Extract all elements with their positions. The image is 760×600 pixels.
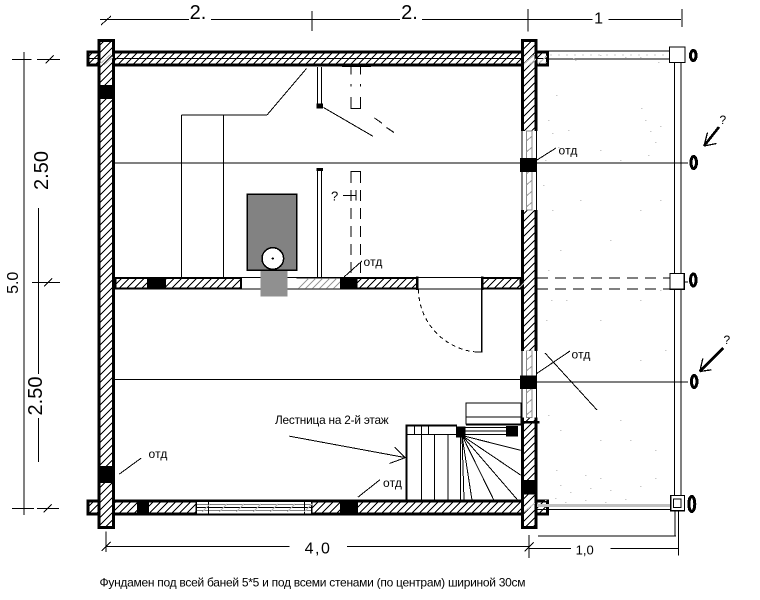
svg-text:?: ?	[724, 333, 731, 347]
svg-text:отд: отд	[149, 447, 168, 461]
svg-text:2.50: 2.50	[25, 377, 47, 416]
svg-text:1: 1	[594, 11, 603, 28]
svg-text:отд: отд	[559, 144, 578, 158]
svg-text:Фундамен под всей баней 5*5 и: Фундамен под всей баней 5*5 и под всеми …	[100, 576, 526, 590]
svg-text:2.: 2.	[401, 2, 418, 24]
svg-text:?: ?	[331, 189, 338, 204]
svg-text:2.: 2.	[190, 2, 207, 24]
svg-text:отд: отд	[383, 476, 402, 490]
svg-text:2.50: 2.50	[31, 151, 53, 190]
svg-text:5.0: 5.0	[5, 272, 22, 294]
svg-text:отд: отд	[572, 348, 591, 362]
svg-text:4,0: 4,0	[305, 541, 332, 558]
svg-text:отд: отд	[364, 255, 383, 269]
svg-text:1,0: 1,0	[576, 543, 594, 558]
svg-text:Лестница на 2-й этаж: Лестница на 2-й этаж	[275, 413, 389, 427]
svg-text:?: ?	[720, 113, 727, 127]
